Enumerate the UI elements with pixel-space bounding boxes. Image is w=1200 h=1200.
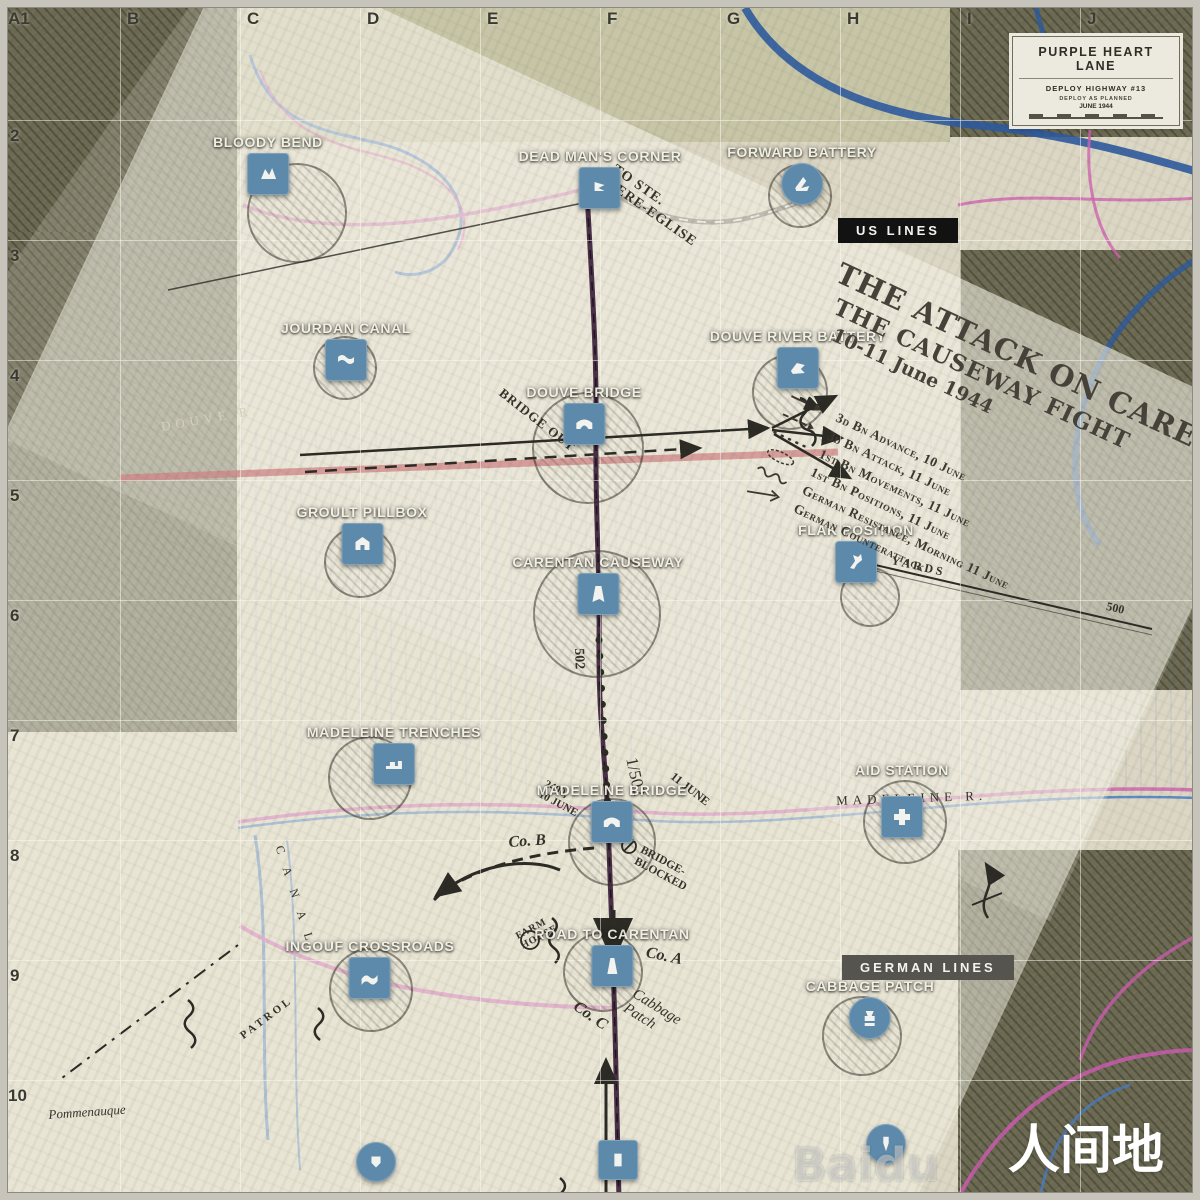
strongpoint-icon-madeleine-trenches[interactable] [373, 743, 415, 785]
grid-line [0, 720, 1200, 721]
strongpoint-jourdan-canal[interactable]: JOURDAN CANAL [281, 320, 411, 381]
us-lines-badge: US LINES [838, 218, 958, 243]
strongpoint-label: AID STATION [855, 762, 949, 778]
grid-col-label: B [127, 9, 139, 29]
grid-col-label: F [607, 9, 617, 29]
main-road-red [120, 452, 838, 478]
farm-track [434, 863, 560, 900]
grid-row-label: 6 [10, 606, 19, 626]
strongpoint-icon-groult-pillbox[interactable] [341, 523, 383, 565]
strongpoint-label: FORWARD BATTERY [727, 144, 877, 160]
grid-row-label: 2 [10, 126, 19, 146]
strongpoint-label: MADELEINE BRIDGE [537, 782, 687, 798]
strongpoint-groult-pillbox[interactable]: GROULT PILLBOX [296, 504, 427, 565]
patrol-dashes [62, 945, 238, 1078]
strongpoint-cabbage-patch[interactable]: CABBAGE PATCH [806, 978, 935, 1039]
strongpoint-icon-cabbage-patch[interactable] [849, 997, 891, 1039]
strongpoint-bloody-bend[interactable]: BLOODY BEND [213, 134, 323, 195]
grid-line [0, 1080, 1200, 1081]
strongpoint-dead-mans-corner[interactable]: DEAD MAN'S CORNER [519, 148, 682, 209]
strongpoint-label: DOUVE BRIDGE [526, 384, 641, 400]
strongpoint-label: ROAD TO CARENTAN [534, 926, 689, 942]
wavy-resistance-5 [555, 1178, 565, 1200]
strongpoint-icon-forward-battery[interactable] [781, 163, 823, 205]
grid-col-label: D [367, 9, 379, 29]
watermark: Baidu贴吧 | 人间地狱吧 [742, 1108, 1200, 1200]
strongpoint-forward-battery[interactable]: FORWARD BATTERY [727, 144, 877, 205]
north-arrow [984, 864, 991, 918]
grid-col-label: I [967, 9, 972, 29]
wavy-resistance-3 [185, 1000, 196, 1048]
grid-col-label: H [847, 9, 859, 29]
map-card-line2: DEPLOY AS PLANNED [1019, 96, 1173, 102]
map-card-line3: JUNE 1944 [1019, 103, 1173, 110]
strongpoint-carentan-causeway[interactable]: CARENTAN CAUSEWAY [512, 554, 683, 615]
strongpoint-madeleine-trenches[interactable]: MADELEINE TRENCHES [307, 724, 481, 785]
grid-row-label: 5 [10, 486, 19, 506]
grid-col-label: J [1087, 9, 1096, 29]
strongpoint-madeleine-bridge[interactable]: MADELEINE BRIDGE [537, 782, 687, 843]
map-name-card: PURPLE HEART LANE DEPLOY HIGHWAY #13 DEP… [1012, 36, 1180, 126]
map-card-subtitle: DEPLOY HIGHWAY #13 [1019, 84, 1173, 93]
map-name: PURPLE HEART LANE [1019, 45, 1173, 79]
strongpoint-label: GROULT PILLBOX [296, 504, 427, 520]
strongpoint-icon-ingouf-crossroads[interactable] [349, 957, 391, 999]
watermark-community: 人间地狱吧 [1008, 1108, 1200, 1200]
strongpoint-road-to-carentan[interactable]: ROAD TO CARENTAN [534, 926, 689, 987]
strongpoint-label: CABBAGE PATCH [806, 978, 935, 994]
wavy-resistance-4 [315, 1008, 324, 1040]
strongpoint-icon-road-to-carentan[interactable] [591, 945, 633, 987]
map-marker-bottom-1[interactable] [356, 1142, 396, 1182]
tactical-map[interactable]: A1 B C D E F G H I J 2 3 4 5 6 7 8 9 10 … [0, 0, 1200, 1200]
strongpoint-douve-bridge[interactable]: DOUVE BRIDGE [526, 384, 641, 445]
watermark-logo: Baidu贴吧 [792, 1138, 969, 1200]
strongpoint-icon-dead-mans-corner[interactable] [579, 167, 621, 209]
grid-row-label: 10 [8, 1086, 27, 1106]
strongpoint-icon-jourdan-canal[interactable] [325, 339, 367, 381]
map-card-scale-bar [1029, 114, 1163, 119]
strongpoint-label: JOURDAN CANAL [281, 320, 411, 336]
neatline [168, 200, 597, 290]
strongpoint-ingouf-crossroads[interactable]: INGOUF CROSSROADS [286, 938, 455, 999]
annotation-highway-502: 502 [571, 648, 587, 670]
strongpoint-aid-station[interactable]: AID STATION [855, 762, 949, 838]
strongpoint-label: BLOODY BEND [213, 134, 323, 150]
grid-row-label: 3 [10, 246, 19, 266]
strongpoint-label: CARENTAN CAUSEWAY [512, 554, 683, 570]
map-marker-bottom-2[interactable] [598, 1140, 638, 1180]
grid-col-label: E [487, 9, 498, 29]
grid-col-label: C [247, 9, 259, 29]
strongpoint-icon-douve-river-battery[interactable] [777, 347, 819, 389]
grid-col-label: A1 [8, 9, 30, 29]
grid-row-label: 9 [10, 966, 19, 986]
strongpoint-icon-aid-station[interactable] [881, 796, 923, 838]
strongpoint-icon-bloody-bend[interactable] [247, 153, 289, 195]
strongpoint-label: DEAD MAN'S CORNER [519, 148, 682, 164]
grid-col-label: G [727, 9, 740, 29]
grid-row-label: 8 [10, 846, 19, 866]
strongpoint-icon-douve-bridge[interactable] [563, 403, 605, 445]
grid-line [0, 240, 1200, 241]
strongpoint-icon-madeleine-bridge[interactable] [591, 801, 633, 843]
strongpoint-label: INGOUF CROSSROADS [286, 938, 455, 954]
grid-row-label: 7 [10, 726, 19, 746]
strongpoint-icon-carentan-causeway[interactable] [577, 573, 619, 615]
grid-row-label: 4 [10, 366, 19, 386]
strongpoint-label: MADELEINE TRENCHES [307, 724, 481, 740]
german-lines-badge: GERMAN LINES [842, 955, 1014, 980]
